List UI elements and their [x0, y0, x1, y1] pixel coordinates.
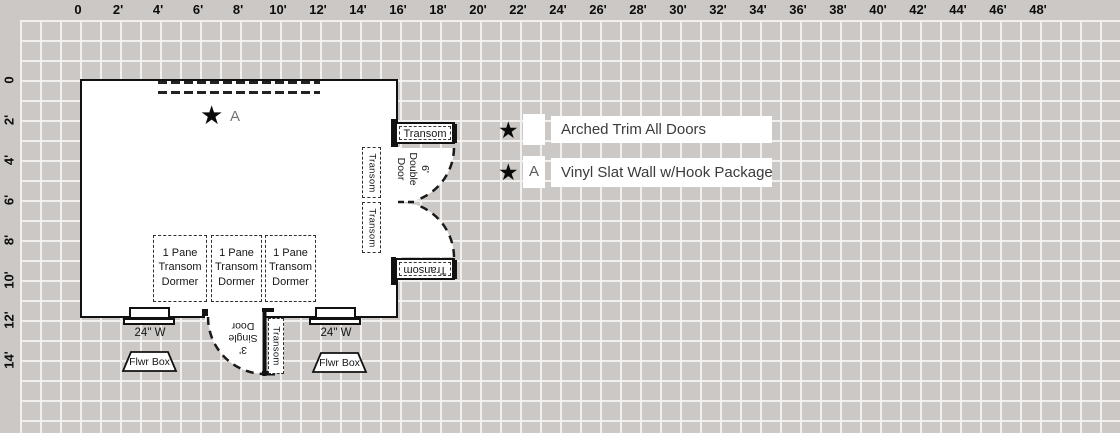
double-door-transom-bottom[interactable]: Transom — [395, 258, 455, 280]
window-left-label: 24" W — [124, 327, 176, 339]
window-right-sill — [309, 318, 361, 325]
single-door-transom[interactable]: Transom — [268, 318, 284, 374]
legend-text-2: Vinyl Slat Wall w/Hook Package — [551, 158, 772, 187]
star-icon: ★ — [498, 119, 519, 142]
double-door-size-label: 6' Double Door — [393, 142, 431, 196]
legend-key-1 — [523, 114, 545, 145]
slat-wall-line-2[interactable] — [158, 91, 320, 94]
window-left-sill — [123, 318, 175, 325]
plan-drawing-layer — [0, 0, 1120, 440]
single-door-jamb-left — [202, 309, 208, 316]
single-door-jamb-top — [262, 308, 274, 312]
single-door-size-label: 3' Single Door — [219, 320, 267, 356]
wall-transom-2[interactable]: Transom — [362, 202, 381, 253]
star-icon[interactable]: ★ — [200, 102, 223, 128]
dormer-2[interactable]: 1 Pane Transom Dormer — [211, 235, 262, 302]
double-door-bracket-bottom-left — [391, 257, 396, 285]
wall-transom-2-label: Transom — [366, 208, 377, 247]
double-door-bracket-top-right — [452, 124, 457, 143]
flower-box-left-label: Flwr Box — [123, 356, 176, 368]
dormer-1[interactable]: 1 Pane Transom Dormer — [153, 235, 207, 302]
double-door-transom-top[interactable]: Transom — [395, 122, 455, 144]
dormer-3[interactable]: 1 Pane Transom Dormer — [265, 235, 316, 302]
slat-wall-line-1[interactable] — [158, 81, 320, 84]
star-icon: ★ — [498, 161, 519, 184]
single-door-transom-label: Transom — [271, 326, 282, 365]
legend-key-2: A — [523, 156, 545, 188]
marker-a-label: A — [230, 108, 240, 125]
double-door-bracket-bottom-right — [452, 260, 457, 279]
legend-text-1: Arched Trim All Doors — [551, 116, 772, 143]
wall-transom-1-label: Transom — [366, 153, 377, 192]
floorplan-designer-canvas: 02'4'6'8'10'12'14'16'18'20'22'24'26'28'3… — [0, 0, 1120, 440]
window-right-label: 24" W — [310, 327, 362, 339]
wall-transom-1[interactable]: Transom — [362, 147, 381, 198]
double-door-transom-bottom-label: Transom — [400, 263, 450, 276]
double-door-transom-top-label: Transom — [399, 126, 451, 140]
flower-box-right-label: Flwr Box — [313, 357, 366, 369]
